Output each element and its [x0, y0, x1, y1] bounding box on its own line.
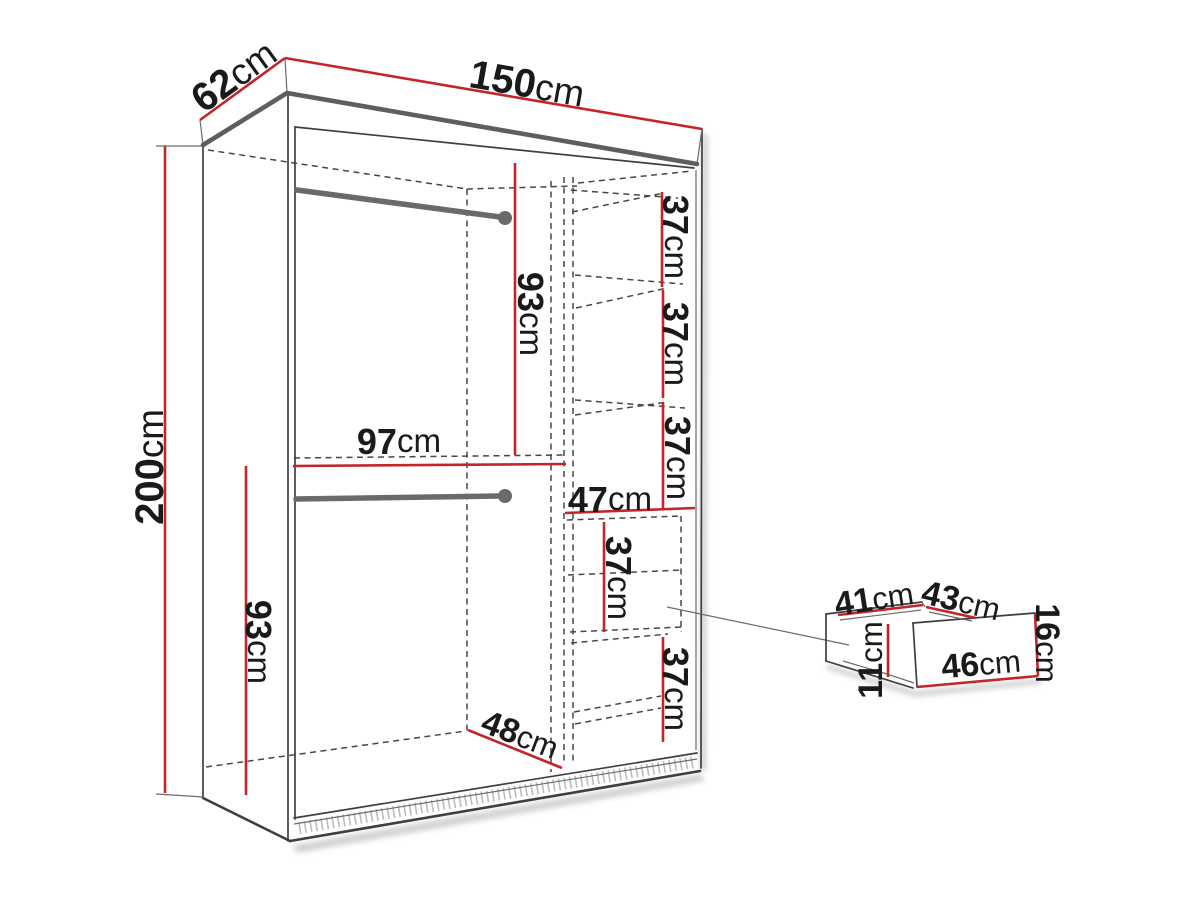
dim-shelf-gap-5-label: 37cm	[656, 647, 697, 731]
dim-shelf-gap-4-label: 37cm	[599, 536, 640, 620]
dim-depth-label: 62cm	[183, 31, 285, 122]
hidden-edge-dashed-lines	[206, 150, 692, 772]
dim-height-label: 200cm	[128, 409, 172, 525]
drawer-dim-41-label: 41cm	[832, 574, 916, 624]
wardrobe-dimension-diagram: 150cm 62cm 200cm 93cm 93cm 97cm 48cm 47c…	[0, 0, 1200, 899]
drawer-dim-16-label: 16cm	[1028, 603, 1066, 683]
dim-97-label: 97cm	[357, 421, 441, 462]
dim-width-label: 150cm	[466, 52, 588, 115]
dim-97-line	[293, 464, 566, 466]
drawer-dim-11-label: 11cm	[852, 621, 890, 699]
hanging-rail-lower	[296, 489, 512, 503]
plinth-track-hatch	[299, 762, 694, 828]
dim-47-label: 47cm	[568, 479, 652, 520]
dim-upper-93-label: 93cm	[511, 272, 552, 356]
dim-shelf-gap-2-label: 37cm	[656, 302, 697, 386]
dim-48-label: 48cm	[476, 703, 564, 767]
top-panel-front-edge	[203, 93, 697, 164]
drawer-leader-line	[667, 607, 849, 645]
dim-shelf-gap-3-label: 37cm	[658, 416, 699, 500]
hanging-rail-upper	[297, 190, 512, 225]
dim-shelf-gap-1-label: 37cm	[656, 195, 697, 279]
dim-lower-93-label: 93cm	[239, 600, 280, 684]
